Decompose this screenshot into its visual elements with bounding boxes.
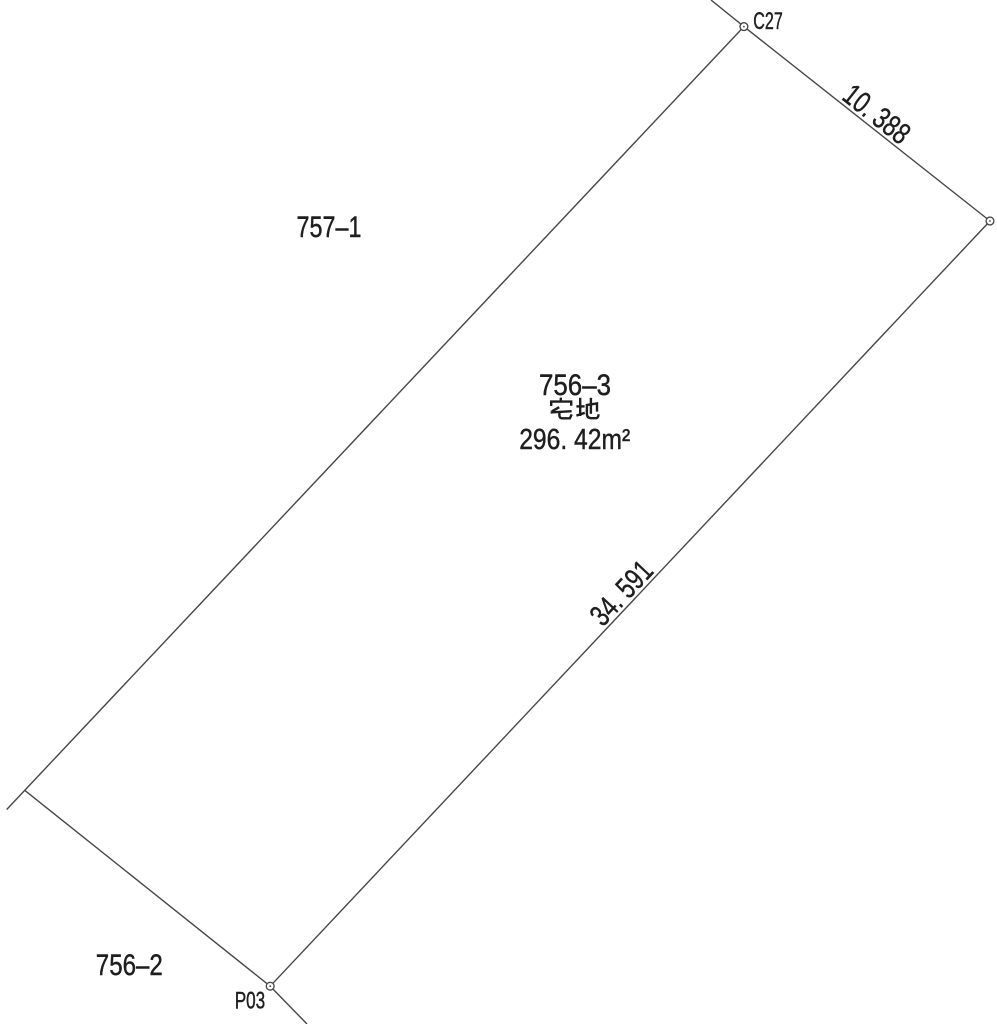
svg-text:296. 42m²: 296. 42m²: [519, 424, 630, 456]
svg-text:P03: P03: [235, 988, 266, 1015]
svg-text:756–3: 756–3: [539, 369, 611, 402]
svg-text:C27: C27: [753, 8, 783, 35]
svg-text:757–1: 757–1: [297, 211, 362, 244]
svg-text:756–2: 756–2: [96, 949, 163, 982]
